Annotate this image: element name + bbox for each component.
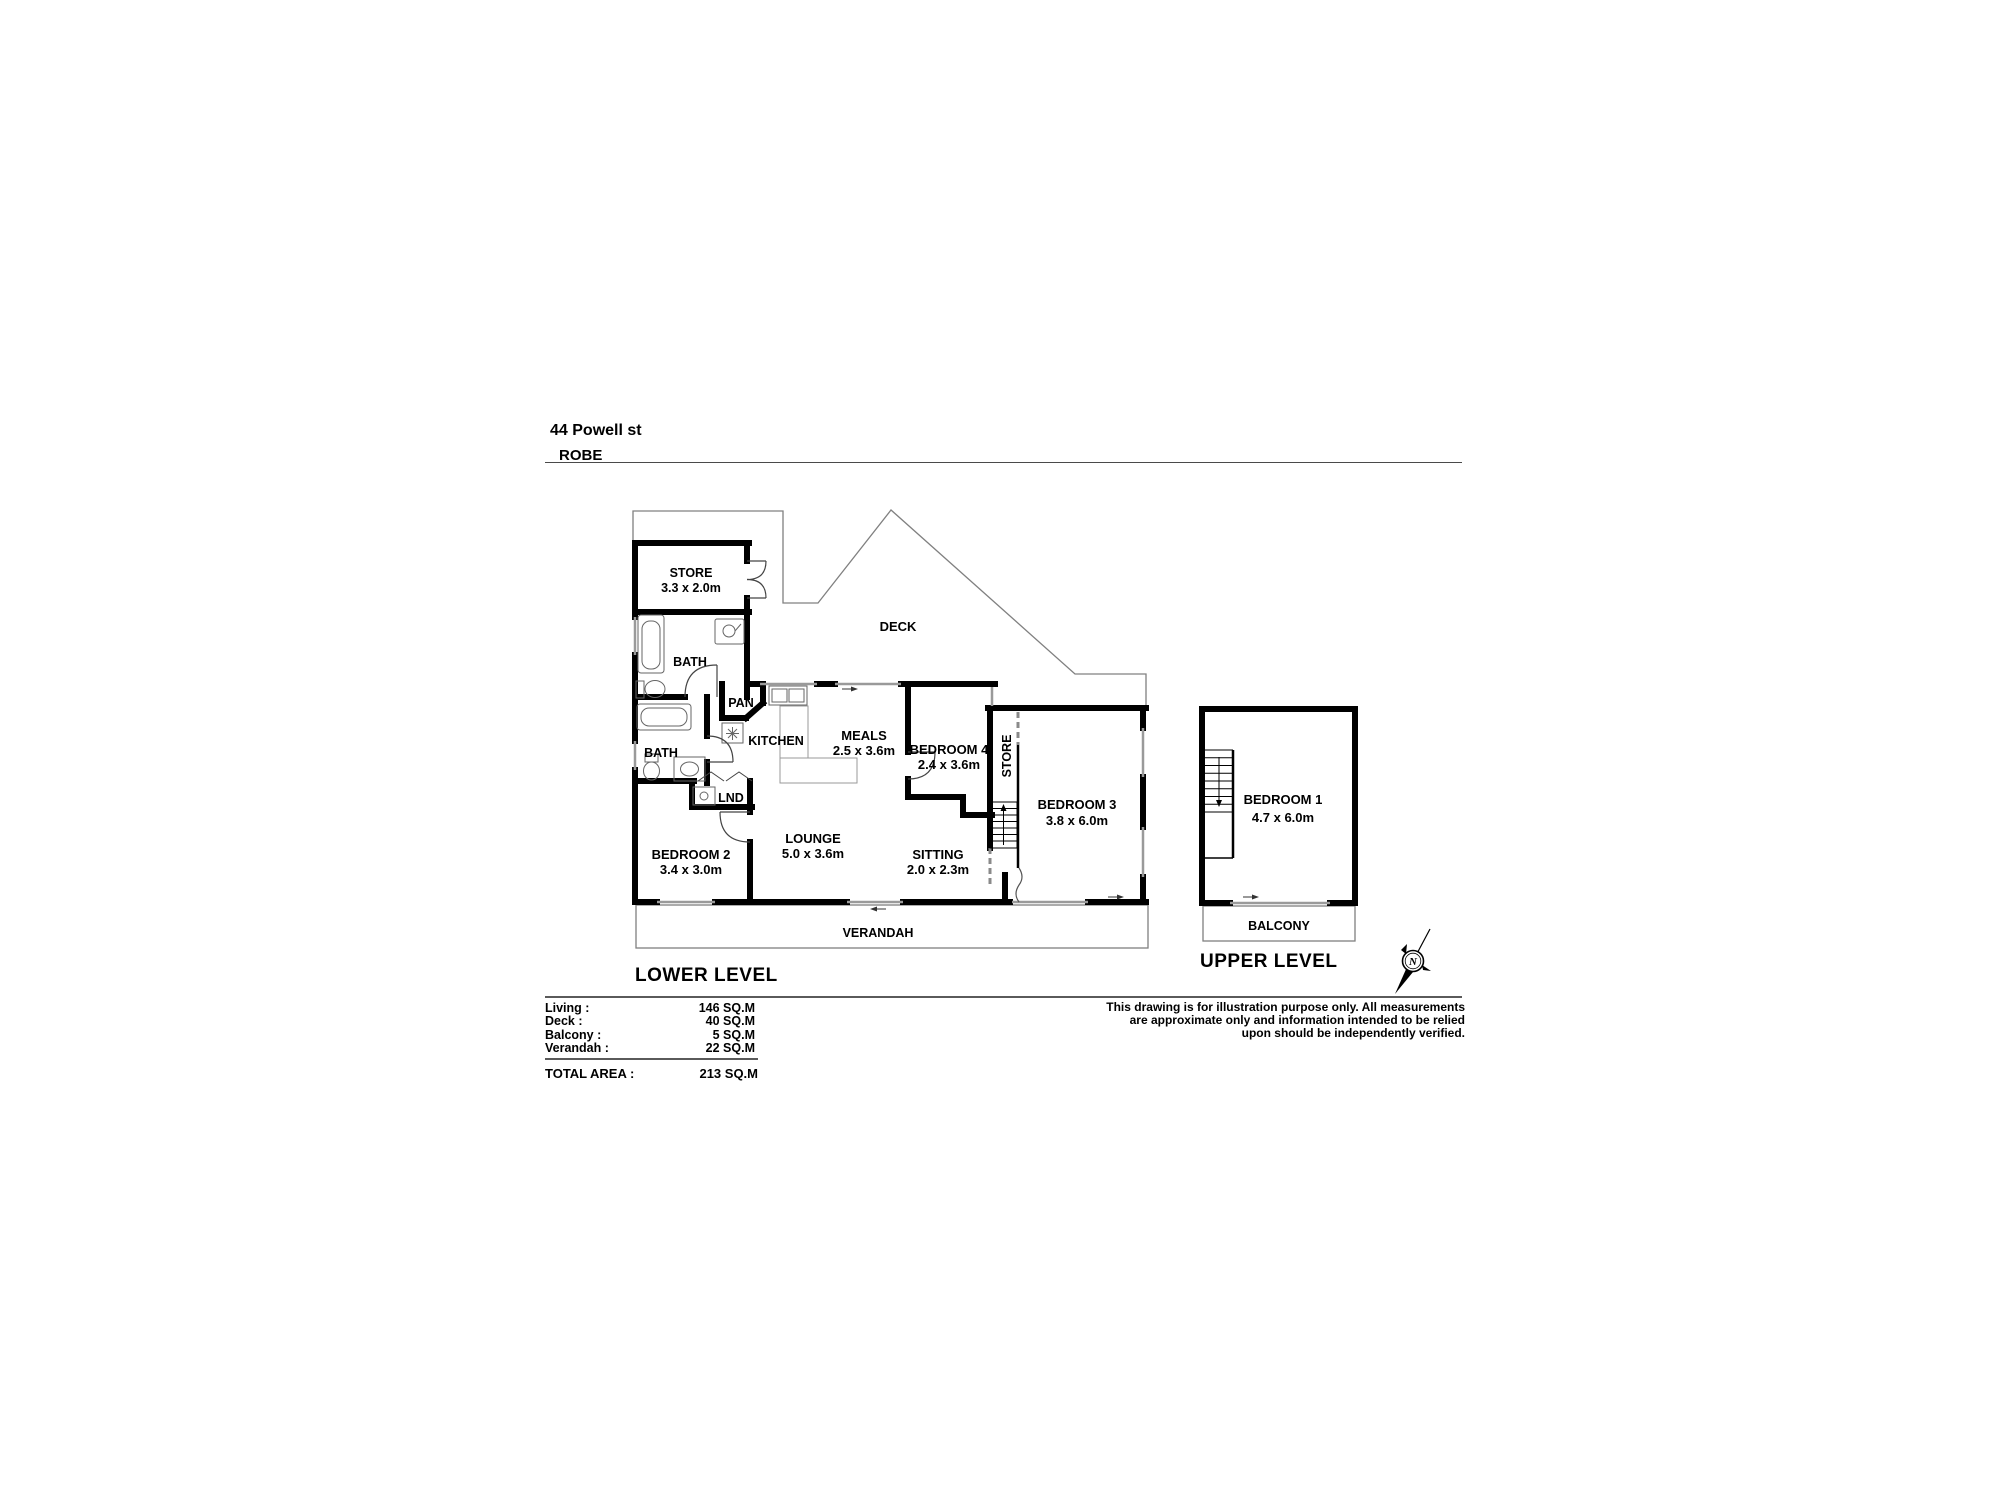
thin-outlines xyxy=(633,510,1355,948)
lower-level-title: LOWER LEVEL xyxy=(635,965,778,987)
room-label-pan: PAN xyxy=(728,696,753,710)
room-label-bedroom4: BEDROOM 4 xyxy=(910,742,990,757)
room-label-bath-top: BATH xyxy=(673,655,707,669)
room-label-kitchen: KITCHEN xyxy=(748,734,804,748)
room-label-bedroom2: BEDROOM 2 xyxy=(652,847,731,862)
bifold-door xyxy=(698,772,724,781)
sink-bowl-left xyxy=(772,689,787,702)
area-value: 40 SQ.M xyxy=(706,1015,755,1028)
floorplan-drawing: N STORE 3.3 x 2.0m BATH DECK PAN KITCHEN… xyxy=(0,0,2000,1500)
room-label-meals: MEALS xyxy=(841,728,887,743)
vanity-bowl xyxy=(681,762,699,776)
trough-bowl xyxy=(700,792,708,800)
room-label-verandah: VERANDAH xyxy=(843,926,914,940)
area-value: 146 SQ.M xyxy=(699,1002,755,1015)
area-table: Living : 146 SQ.M Deck : 40 SQ.M Balcony… xyxy=(545,1002,755,1056)
stove-burner xyxy=(726,727,739,740)
stairs-lower xyxy=(990,802,1017,848)
area-label: Living : xyxy=(545,1002,589,1015)
room-label-balcony: BALCONY xyxy=(1248,919,1310,933)
stairs-upper xyxy=(1205,750,1233,858)
bathtub-inner xyxy=(641,708,687,726)
table-row: Living : 146 SQ.M xyxy=(545,1002,755,1015)
stairs-up-arrow xyxy=(1001,804,1007,811)
room-label-bath-lower: BATH xyxy=(644,746,678,760)
vanity-icon xyxy=(674,757,705,781)
area-label: Deck : xyxy=(545,1015,583,1028)
room-dims-store: 3.3 x 2.0m xyxy=(661,581,721,595)
area-label: Balcony : xyxy=(545,1029,601,1042)
table-top-rule xyxy=(545,996,1462,998)
room-label-bedroom3: BEDROOM 3 xyxy=(1038,797,1117,812)
room-label-bedroom1: BEDROOM 1 xyxy=(1244,792,1323,807)
upper-level-title: UPPER LEVEL xyxy=(1200,951,1337,973)
door-swing xyxy=(707,736,733,762)
room-dims-lounge: 5.0 x 3.6m xyxy=(782,846,844,861)
room-label-sitting: SITTING xyxy=(912,847,963,862)
sink-bowl-right xyxy=(789,689,804,702)
toilet-icon xyxy=(644,762,660,780)
table-row: Balcony : 5 SQ.M xyxy=(545,1029,755,1042)
total-area-row: TOTAL AREA : 213 SQ.M xyxy=(545,1066,758,1081)
room-label-deck: DECK xyxy=(880,619,917,634)
door-swing xyxy=(685,665,717,697)
sink-icon xyxy=(715,619,744,644)
room-dims-bedroom3: 3.8 x 6.0m xyxy=(1046,813,1108,828)
table-row: Verandah : 22 SQ.M xyxy=(545,1042,755,1055)
sink-bowl xyxy=(723,625,735,637)
wall-break-symbol xyxy=(1016,868,1022,902)
stairs-down-arrow xyxy=(1216,800,1222,807)
room-label-lounge: LOUNGE xyxy=(785,831,841,846)
area-label: Verandah : xyxy=(545,1042,609,1055)
door-swing xyxy=(720,812,750,842)
table-row: Deck : 40 SQ.M xyxy=(545,1015,755,1028)
disclaimer-line: upon should be independently verified. xyxy=(1035,1027,1465,1040)
room-dims-bedroom1: 4.7 x 6.0m xyxy=(1252,810,1314,825)
room-label-store: STORE xyxy=(670,566,713,580)
room-dims-bedroom2: 3.4 x 3.0m xyxy=(660,862,722,877)
room-dims-sitting: 2.0 x 2.3m xyxy=(907,862,969,877)
compass-north-label: N xyxy=(1408,956,1418,968)
laundry-trough-icon xyxy=(693,787,715,805)
floorplan-page: 44 Powell st ROBE xyxy=(0,0,2000,1500)
table-mid-rule xyxy=(545,1058,758,1060)
bathtub-inner xyxy=(642,621,660,669)
total-area-value: 213 SQ.M xyxy=(699,1066,758,1081)
room-dims-bedroom4: 2.4 x 3.6m xyxy=(918,757,980,772)
room-label-hall-store: STORE xyxy=(1000,735,1014,778)
compass-north-icon: N xyxy=(1395,929,1431,994)
compass-fin xyxy=(1422,965,1431,971)
total-area-label: TOTAL AREA : xyxy=(545,1066,634,1081)
area-value: 5 SQ.M xyxy=(713,1029,755,1042)
area-value: 22 SQ.M xyxy=(706,1042,755,1055)
tap-icon xyxy=(735,624,741,631)
windows xyxy=(635,617,1330,903)
room-dims-meals: 2.5 x 3.6m xyxy=(833,743,895,758)
disclaimer: This drawing is for illustration purpose… xyxy=(1035,1001,1465,1041)
room-label-lnd: LND xyxy=(718,791,744,805)
